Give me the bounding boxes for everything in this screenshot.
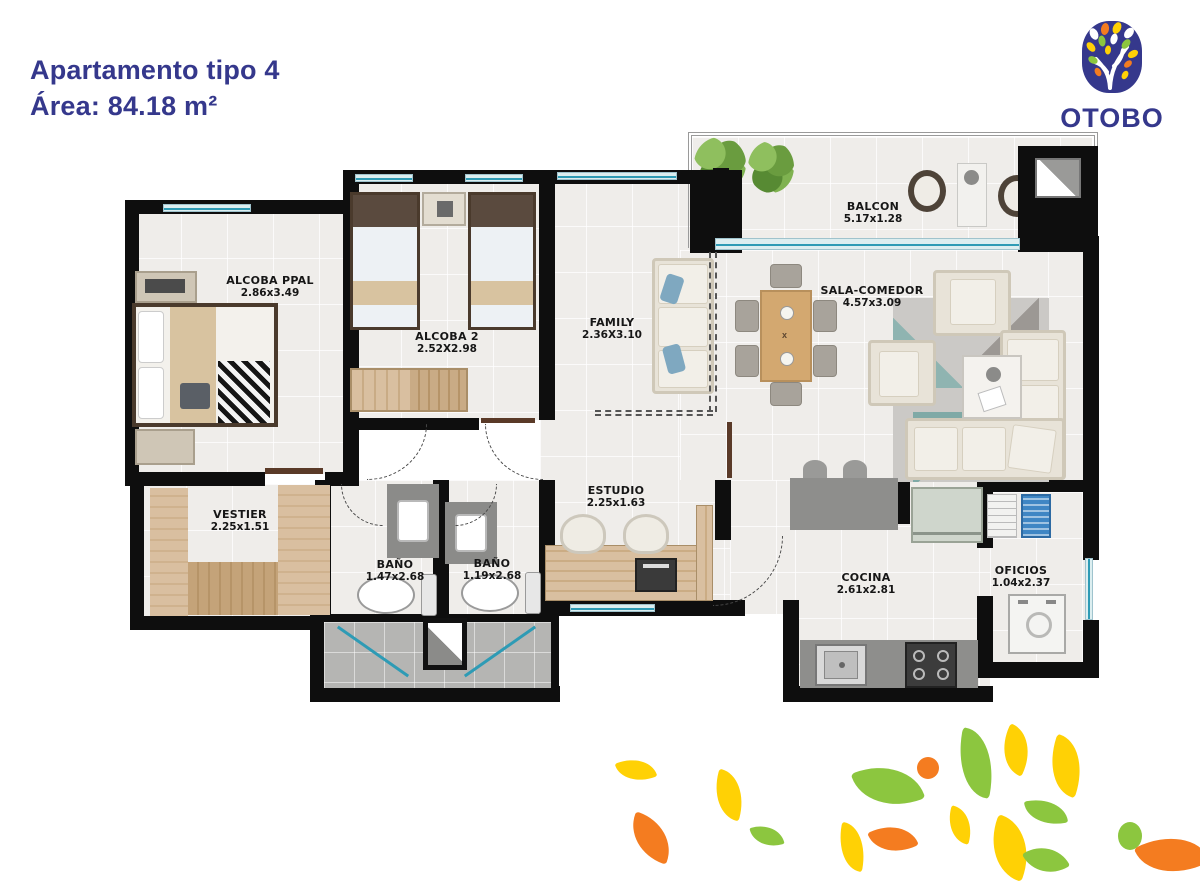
coffee-table: [962, 355, 1022, 419]
tv-icon: [145, 279, 185, 293]
wall: [898, 478, 910, 524]
double-bed: [132, 303, 278, 427]
family-dashed-boundary: [595, 410, 713, 416]
sliding-door-window: [715, 238, 1020, 250]
balcony-table-decor: [964, 170, 979, 185]
dining-chair: [735, 300, 759, 332]
wall: [539, 170, 555, 420]
leaf-icon: [708, 769, 751, 822]
stove: [905, 642, 957, 688]
window: [163, 204, 251, 212]
wall: [310, 614, 324, 702]
elevator-duct: [423, 618, 467, 670]
ironing-mat: [1021, 494, 1051, 538]
closet: [278, 485, 330, 615]
window: [557, 172, 677, 180]
wall: [130, 473, 144, 630]
desk-chair: [623, 514, 669, 554]
room-label: OFICIOS1.04x2.37: [951, 564, 1091, 589]
room-label: SALA-COMEDOR4.57x3.09: [792, 284, 952, 309]
armchair: [868, 340, 936, 406]
ladder-rack: [987, 494, 1017, 538]
wall: [1083, 236, 1099, 492]
dining-chair: [813, 345, 837, 377]
leaf-icon: [917, 757, 939, 779]
leaf-icon: [1134, 822, 1200, 888]
fridge: [911, 487, 983, 543]
desk: [696, 505, 713, 601]
room-label: ALCOBA 22.52X2.98: [377, 330, 517, 355]
printer-icon: [635, 558, 677, 592]
leaf-icon: [851, 753, 926, 819]
dining-chair: [735, 345, 759, 377]
wall: [130, 616, 340, 630]
room-label: FAMILY2.36X3.10: [542, 316, 682, 341]
leaf-icon: [749, 821, 784, 852]
tree-logo-icon: [1081, 20, 1143, 94]
door-leaf: [265, 468, 323, 474]
leaf-icon: [952, 727, 1001, 799]
single-bed: [468, 192, 536, 330]
bar-stool: [843, 460, 867, 478]
desk-chair: [560, 514, 606, 554]
door-arc: [367, 424, 427, 480]
door-arc: [485, 424, 543, 480]
wall: [783, 600, 799, 702]
leaf-icon: [980, 814, 1040, 882]
wall: [983, 662, 1099, 678]
nightstand: [135, 429, 195, 465]
bar-stool: [803, 460, 827, 478]
kitchen-sink: [815, 644, 867, 686]
dining-chair: [770, 382, 802, 406]
room-label: ESTUDIO2.25x1.63: [546, 484, 686, 509]
page-title: Apartamento tipo 4 Área: 84.18 m²: [30, 52, 280, 125]
floor-plan: x: [115, 128, 1100, 703]
closet: [188, 562, 278, 615]
single-bed: [350, 192, 420, 330]
apartment-area: Área: 84.18 m²: [30, 91, 217, 121]
window: [570, 604, 655, 612]
wall: [977, 596, 993, 678]
kitchen-island: [790, 478, 898, 530]
family-dashed-boundary: [709, 252, 717, 412]
wall: [310, 686, 560, 702]
bathroom-sink: [387, 484, 439, 558]
leaf-icon: [623, 811, 680, 864]
plant-icon: [748, 141, 794, 193]
wall: [715, 480, 731, 540]
room-label: BALCON5.17x1.28: [803, 200, 943, 225]
washing-machine: [1008, 594, 1066, 654]
leaf-icon: [834, 822, 870, 872]
leaf-icon: [867, 816, 919, 863]
window: [465, 174, 523, 182]
sectional-sofa: [905, 418, 1065, 480]
room-label: COCINA2.61x2.81: [796, 571, 936, 596]
leaf-icon: [992, 723, 1040, 776]
desk: [545, 545, 713, 601]
leaf-icon: [615, 752, 658, 789]
apartment-title: Apartamento tipo 4: [30, 55, 280, 85]
leaf-icon: [1040, 734, 1092, 798]
nightstand: [422, 192, 466, 226]
wall: [125, 472, 265, 486]
door-leaf: [481, 418, 535, 423]
desk-dresser: [350, 368, 468, 412]
wall: [783, 686, 993, 702]
room-label: VESTIER2.25x1.51: [170, 508, 310, 533]
room-label: BAÑO1.19x2.68: [422, 557, 562, 582]
leaf-icon: [943, 805, 977, 845]
room-label: ALCOBA PPAL2.86x3.49: [200, 274, 340, 299]
otobo-logo: OTOBO: [1042, 20, 1182, 134]
duct-panel-triangle: [1037, 160, 1079, 196]
wall: [1083, 480, 1099, 560]
door-leaf: [727, 422, 732, 478]
window: [355, 174, 413, 182]
leaf-icon: [1024, 795, 1068, 830]
